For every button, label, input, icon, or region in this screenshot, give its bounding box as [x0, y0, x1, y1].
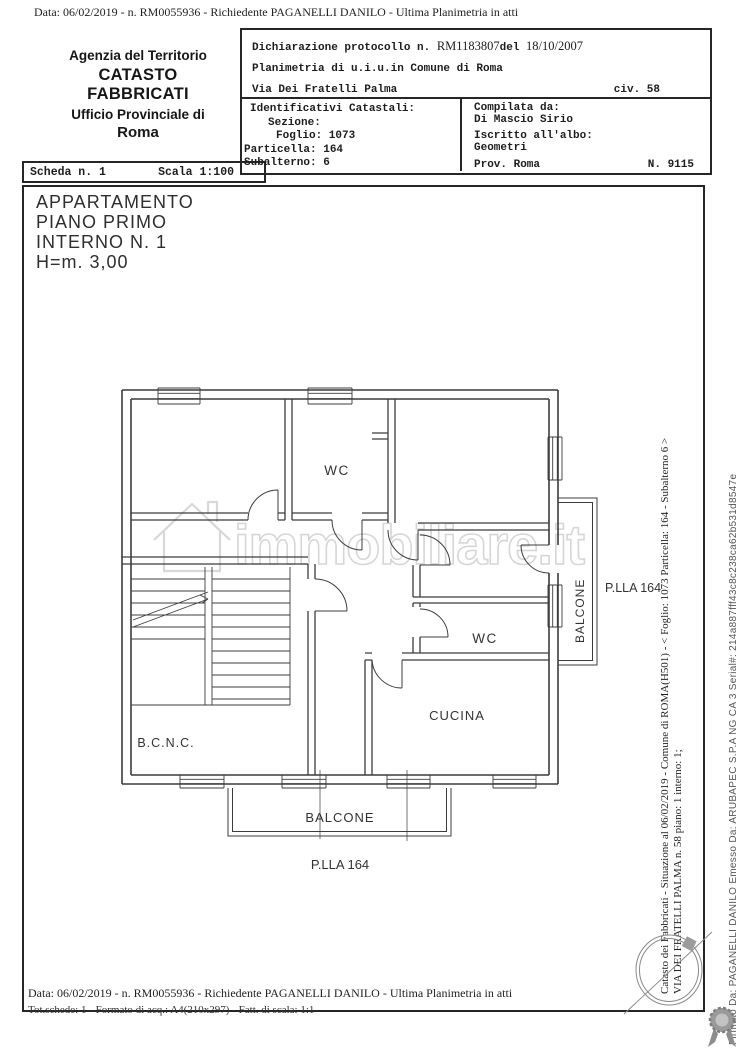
compilata-column: Compilata da: Di Mascio Sirio Iscritto a…	[460, 99, 710, 171]
albo-number: N. 9115	[648, 160, 694, 172]
label-wc-mid: WC	[472, 631, 498, 646]
civic-number: civ. 58	[614, 80, 660, 101]
label-balcone-bottom: BALCONE	[305, 810, 374, 825]
agency-block: Agenzia del Territorio CATASTO FABBRICAT…	[46, 48, 230, 141]
staircase	[131, 567, 290, 705]
outer-walls	[122, 390, 558, 784]
compilata-name: Di Mascio Sirio	[474, 115, 710, 127]
windows	[158, 388, 562, 788]
document-footer-line: Data: 06/02/2019 - n. RM0055936 - Richie…	[28, 986, 512, 1001]
subalterno-field: Subalterno: 6	[242, 157, 460, 171]
label-balcone-right: BALCONE	[573, 579, 587, 643]
document-footer-meta: Tot.schede: 1 - Formato di acq.: A4(210x…	[28, 1004, 314, 1016]
identificativi-title: Identificativi Catastali:	[242, 103, 460, 117]
reference-lines	[320, 770, 407, 841]
prov-row: Prov. Roma N. 9115	[474, 160, 710, 172]
agency-office-type: CATASTO FABBRICATI	[46, 66, 230, 104]
agency-office: Ufficio Provinciale di	[46, 107, 230, 122]
albo-value: Geometri	[474, 143, 710, 155]
label-wc-top: WC	[324, 463, 350, 478]
margin-catasto-text: Catasto dei Fabbricati - Situazione al 0…	[659, 382, 685, 994]
particella-field: Particella: 164	[242, 144, 460, 158]
albo-label: Iscritto all'albo:	[474, 131, 710, 143]
scheda-number: Scheda n. 1	[30, 166, 106, 179]
label-plla-right: P.LLA 164	[605, 581, 661, 595]
agency-name: Agenzia del Territorio	[46, 48, 230, 63]
protocol-date: 18/10/2007	[526, 39, 583, 53]
protocol-del-label: del	[500, 42, 520, 54]
floor-plan: WC WC CUCINA B.C.N.C. BALCONE P.LLA 164 …	[100, 375, 680, 885]
balconies	[228, 498, 597, 836]
foglio-field: Foglio: 1073	[242, 130, 460, 144]
margin-catasto-line1: Catasto dei Fabbricati - Situazione al 0…	[659, 382, 672, 994]
declaration-columns: Identificativi Catastali: Sezione: Fogli…	[242, 97, 710, 171]
plan-title-height: H=m. 3,00	[36, 252, 194, 272]
compilata-title: Compilata da:	[474, 103, 710, 115]
planimetria-row: Planimetria di u.i.u.in Comune di Roma	[252, 59, 700, 80]
protocol-row: Dichiarazione protocollo n. RM1183807del…	[252, 36, 700, 59]
document-header-line: Data: 06/02/2019 - n. RM0055936 - Richie…	[34, 5, 518, 20]
sezione-field: Sezione:	[242, 117, 460, 131]
street-name: Via Dei Fratelli Palma	[252, 80, 397, 101]
prov-value: Prov. Roma	[474, 160, 540, 172]
plan-title-floor: PIANO PRIMO	[36, 212, 194, 232]
agency-city: Roma	[46, 124, 230, 141]
stamp-seal	[622, 928, 716, 1016]
identificativi-column: Identificativi Catastali: Sezione: Fogli…	[242, 99, 460, 171]
declaration-box: Dichiarazione protocollo n. RM1183807del…	[240, 28, 712, 175]
label-plla-bottom: P.LLA 164	[311, 857, 369, 872]
plan-title-interno: INTERNO N. 1	[36, 232, 194, 252]
plan-title-block: APPARTAMENTO PIANO PRIMO INTERNO N. 1 H=…	[36, 192, 194, 272]
margin-catasto-line2: VIA DEI FRATELLI PALMA n. 58 piano: 1 in…	[672, 382, 685, 994]
scheda-scala-box: Scheda n. 1 Scala 1:100	[22, 161, 266, 183]
room-labels: WC WC CUCINA B.C.N.C. BALCONE P.LLA 164 …	[137, 463, 661, 872]
label-cucina: CUCINA	[429, 708, 485, 723]
rosette-ribbon-icon	[700, 1004, 744, 1050]
label-bcnc: B.C.N.C.	[137, 736, 194, 750]
protocol-number: RM1183807	[437, 39, 500, 53]
scala-value: Scala 1:100	[158, 166, 234, 179]
margin-signature-text: Firmato Da: PAGANELLI DANILO Emesso Da: …	[728, 365, 740, 1045]
protocol-label: Dichiarazione protocollo n.	[252, 42, 430, 54]
plan-title-apartment: APPARTAMENTO	[36, 192, 194, 212]
declaration-top: Dichiarazione protocollo n. RM1183807del…	[242, 30, 710, 97]
